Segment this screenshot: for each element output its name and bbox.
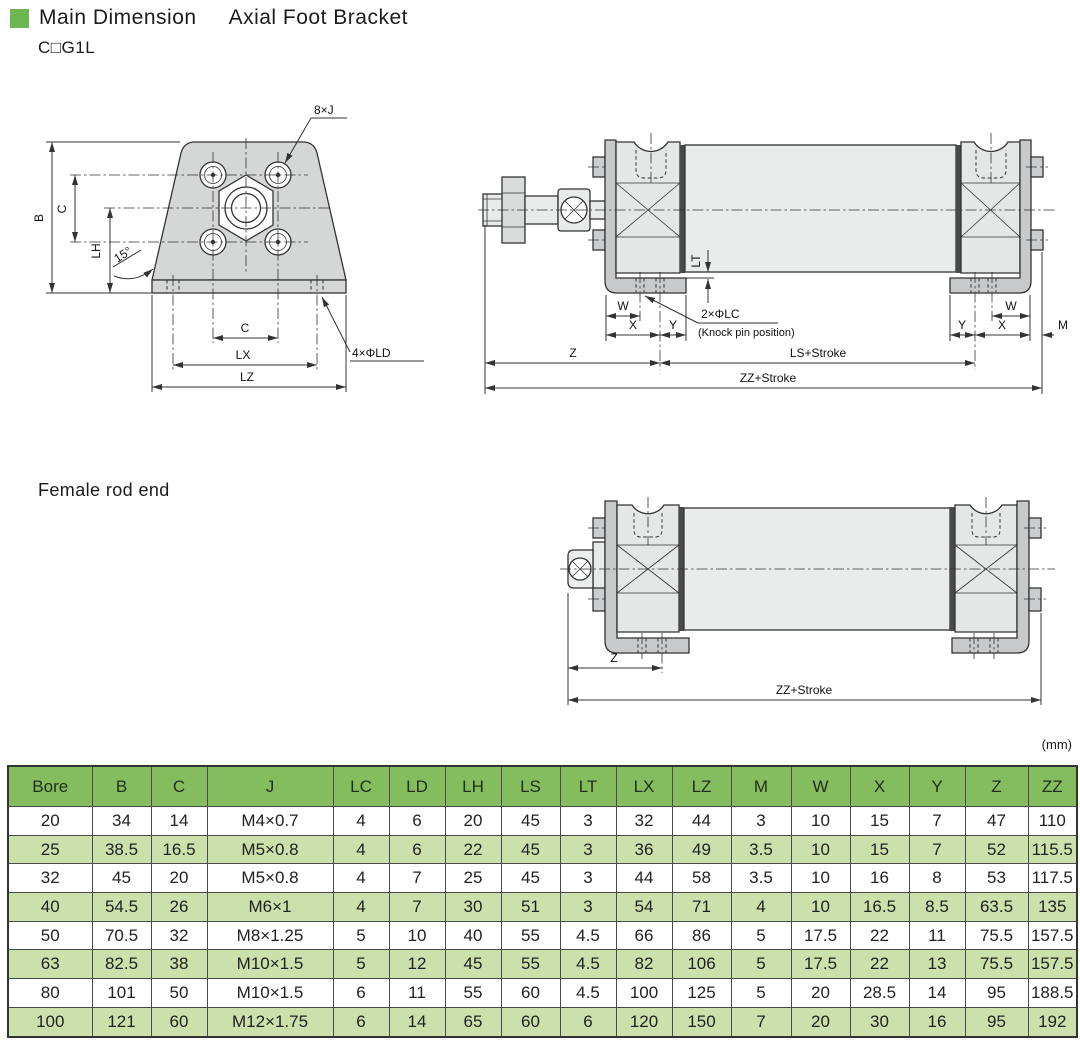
table-cell: 150 bbox=[672, 1007, 731, 1036]
table-cell: M10×1.5 bbox=[207, 950, 333, 979]
page-title: Main Dimension bbox=[39, 6, 197, 30]
table-cell: 7 bbox=[909, 835, 965, 864]
table-cell: 38 bbox=[151, 950, 207, 979]
table-cell: 22 bbox=[850, 950, 909, 979]
side-view-drawing: LT W X Y W Y X M Z LS+Stroke ZZ+Stroke 2… bbox=[478, 105, 1078, 395]
table-cell: 95 bbox=[965, 979, 1028, 1008]
table-cell: 17.5 bbox=[791, 921, 850, 950]
table-cell: 135 bbox=[1028, 893, 1077, 922]
table-cell: 86 bbox=[672, 921, 731, 950]
table-cell: 5 bbox=[333, 921, 389, 950]
callout-8xj-label: 8×J bbox=[314, 103, 334, 117]
table-cell: 38.5 bbox=[92, 835, 151, 864]
table-cell: 60 bbox=[501, 1007, 560, 1036]
table-cell: 49 bbox=[672, 835, 731, 864]
table-cell: 12 bbox=[389, 950, 445, 979]
table-cell: 117.5 bbox=[1028, 864, 1077, 893]
table-cell: 3 bbox=[731, 807, 791, 836]
table-cell: 44 bbox=[672, 807, 731, 836]
table-cell: 100 bbox=[616, 979, 672, 1008]
dim-lt-label: LT bbox=[689, 254, 703, 268]
table-cell: 110 bbox=[1028, 807, 1077, 836]
callout-4xfld-label: 4×ΦLD bbox=[352, 346, 391, 360]
end-cap-left bbox=[616, 142, 680, 273]
table-cell: 3 bbox=[560, 807, 616, 836]
table-cell: 101 bbox=[92, 979, 151, 1008]
table-cell: 7 bbox=[909, 807, 965, 836]
dim-x-left-label: X bbox=[629, 318, 637, 332]
table-header-cell: LX bbox=[616, 766, 672, 807]
catalog-page: Main Dimension Axial Foot Bracket C□G1L bbox=[0, 0, 1080, 1041]
table-cell: 82 bbox=[616, 950, 672, 979]
table-cell: 32 bbox=[151, 921, 207, 950]
table-cell: 16.5 bbox=[850, 893, 909, 922]
page-header: Main Dimension Axial Foot Bracket bbox=[10, 6, 408, 30]
table-cell: 20 bbox=[791, 1007, 850, 1036]
table-cell: 44 bbox=[616, 864, 672, 893]
knock-pin-holes bbox=[638, 633, 998, 673]
table-cell: M8×1.25 bbox=[207, 921, 333, 950]
table-cell: 50 bbox=[8, 921, 92, 950]
table-cell: 32 bbox=[616, 807, 672, 836]
table-header-cell: C bbox=[151, 766, 207, 807]
table-row: 8010150M10×1.561155604.510012552028.5149… bbox=[8, 979, 1077, 1008]
table-cell: 82.5 bbox=[92, 950, 151, 979]
dim-lx-label: LX bbox=[236, 348, 251, 362]
table-cell: 6 bbox=[333, 1007, 389, 1036]
callout-2xflc-label: 2×ΦLC bbox=[701, 307, 740, 321]
table-cell: 10 bbox=[791, 835, 850, 864]
table-cell: 16.5 bbox=[151, 835, 207, 864]
table-cell: 52 bbox=[965, 835, 1028, 864]
model-code: C□G1L bbox=[38, 38, 95, 58]
table-header-cell: ZZ bbox=[1028, 766, 1077, 807]
table-cell: 5 bbox=[731, 950, 791, 979]
table-cell: 20 bbox=[791, 979, 850, 1008]
table-cell: 55 bbox=[501, 921, 560, 950]
table-cell: 45 bbox=[92, 864, 151, 893]
seal-band-left bbox=[680, 145, 685, 273]
table-cell: 8.5 bbox=[909, 893, 965, 922]
dim-c-vert-label: C bbox=[55, 204, 69, 213]
table-cell: 55 bbox=[445, 979, 501, 1008]
table-cell: 4 bbox=[333, 835, 389, 864]
dim-b-label: B bbox=[32, 214, 46, 222]
bracket-front-shape bbox=[152, 142, 346, 293]
table-header-cell: B bbox=[92, 766, 151, 807]
table-cell: 6 bbox=[389, 835, 445, 864]
table-cell: 14 bbox=[389, 1007, 445, 1036]
table-cell: 6 bbox=[560, 1007, 616, 1036]
table-cell: 4.5 bbox=[560, 950, 616, 979]
table-cell: 26 bbox=[151, 893, 207, 922]
table-row: 2538.516.5M5×0.8462245336493.51015752115… bbox=[8, 835, 1077, 864]
table-cell: 45 bbox=[501, 864, 560, 893]
table-cell: 45 bbox=[501, 807, 560, 836]
dim-z-label: Z bbox=[610, 651, 617, 665]
table-cell: 120 bbox=[616, 1007, 672, 1036]
table-cell: 7 bbox=[389, 893, 445, 922]
table-cell: 3 bbox=[560, 893, 616, 922]
table-cell: 4.5 bbox=[560, 979, 616, 1008]
dim-lz-label: LZ bbox=[240, 370, 254, 384]
table-cell: 4 bbox=[333, 893, 389, 922]
table-cell: 40 bbox=[8, 893, 92, 922]
table-cell: 3 bbox=[560, 864, 616, 893]
table-cell: 121 bbox=[92, 1007, 151, 1036]
table-row: 203414M4×0.74620453324431015747110 bbox=[8, 807, 1077, 836]
table-cell: 65 bbox=[445, 1007, 501, 1036]
table-header-cell: Y bbox=[909, 766, 965, 807]
table-cell: 188.5 bbox=[1028, 979, 1077, 1008]
table-header-cell: LZ bbox=[672, 766, 731, 807]
table-cell: 100 bbox=[8, 1007, 92, 1036]
table-header-cell: LD bbox=[389, 766, 445, 807]
table-cell: 3.5 bbox=[731, 835, 791, 864]
table-cell: 30 bbox=[850, 1007, 909, 1036]
table-cell: 36 bbox=[616, 835, 672, 864]
dim-zz-stroke-label: ZZ+Stroke bbox=[776, 683, 833, 697]
table-cell: 25 bbox=[445, 864, 501, 893]
table-cell: 80 bbox=[8, 979, 92, 1008]
table-cell: 10 bbox=[389, 921, 445, 950]
table-cell: 63 bbox=[8, 950, 92, 979]
green-square-icon bbox=[10, 9, 29, 28]
table-cell: 54 bbox=[616, 893, 672, 922]
table-row: 10012160M12×1.75614656061201507203016951… bbox=[8, 1007, 1077, 1036]
table-cell: 45 bbox=[445, 950, 501, 979]
table-cell: 7 bbox=[731, 1007, 791, 1036]
seal-band-right bbox=[956, 145, 961, 273]
table-header-cell: W bbox=[791, 766, 850, 807]
table-cell: 54.5 bbox=[92, 893, 151, 922]
table-cell: 5 bbox=[333, 950, 389, 979]
table-cell: 11 bbox=[909, 921, 965, 950]
table-cell: 71 bbox=[672, 893, 731, 922]
table-cell: M6×1 bbox=[207, 893, 333, 922]
table-cell: 45 bbox=[501, 835, 560, 864]
table-row: 324520M5×0.8472545344583.51016853117.5 bbox=[8, 864, 1077, 893]
table-cell: 4.5 bbox=[560, 921, 616, 950]
table-cell: 16 bbox=[850, 864, 909, 893]
dimension-table: BoreBCJLCLDLHLSLTLXLZMWXYZZZ 203414M4×0.… bbox=[7, 765, 1078, 1038]
table-cell: 55 bbox=[501, 950, 560, 979]
table-cell: 22 bbox=[850, 921, 909, 950]
dim-w-right-label: W bbox=[1005, 299, 1017, 313]
table-row: 6382.538M10×1.551245554.582106517.522137… bbox=[8, 950, 1077, 979]
dim-ls-stroke-label: LS+Stroke bbox=[790, 346, 847, 360]
table-cell: 47 bbox=[965, 807, 1028, 836]
table-cell: 75.5 bbox=[965, 921, 1028, 950]
table-header-cell: LH bbox=[445, 766, 501, 807]
dim-angle-label: 15° bbox=[111, 244, 134, 266]
page-subtitle: Axial Foot Bracket bbox=[229, 6, 408, 30]
table-cell: 3 bbox=[560, 835, 616, 864]
table-header-cell: LT bbox=[560, 766, 616, 807]
table-header-cell: Z bbox=[965, 766, 1028, 807]
dim-m-label: M bbox=[1058, 318, 1068, 332]
table-cell: 10 bbox=[791, 807, 850, 836]
dim-c-horiz-label: C bbox=[241, 321, 250, 335]
table-cell: 17.5 bbox=[791, 950, 850, 979]
table-cell: 10 bbox=[791, 893, 850, 922]
table-cell: 95 bbox=[965, 1007, 1028, 1036]
dim-y-right-label: Y bbox=[958, 318, 966, 332]
callout-knock-pin-note: (Knock pin position) bbox=[698, 327, 795, 339]
table-cell: 106 bbox=[672, 950, 731, 979]
table-cell: 5 bbox=[731, 979, 791, 1008]
table-cell: 4 bbox=[731, 893, 791, 922]
table-cell: 75.5 bbox=[965, 950, 1028, 979]
table-cell: 157.5 bbox=[1028, 950, 1077, 979]
table-cell: 7 bbox=[389, 864, 445, 893]
cylinder-tube bbox=[685, 145, 956, 272]
table-cell: 70.5 bbox=[92, 921, 151, 950]
table-cell: 60 bbox=[501, 979, 560, 1008]
table-cell: M4×0.7 bbox=[207, 807, 333, 836]
table-cell: 157.5 bbox=[1028, 921, 1077, 950]
table-cell: 10 bbox=[791, 864, 850, 893]
table-header-cell: J bbox=[207, 766, 333, 807]
front-view-drawing: B C LH 15° C LX LZ 8×J 4×ΦLD bbox=[30, 90, 450, 405]
dim-lh-label: LH bbox=[89, 243, 103, 258]
dim-y-left-label: Y bbox=[669, 318, 677, 332]
table-cell: 13 bbox=[909, 950, 965, 979]
table-cell: 30 bbox=[445, 893, 501, 922]
table-cell: 115.5 bbox=[1028, 835, 1077, 864]
table-cell: 20 bbox=[445, 807, 501, 836]
table-header-row: BoreBCJLCLDLHLSLTLXLZMWXYZZZ bbox=[8, 766, 1077, 807]
table-cell: M12×1.75 bbox=[207, 1007, 333, 1036]
table-cell: 125 bbox=[672, 979, 731, 1008]
table-header-cell: M bbox=[731, 766, 791, 807]
table-cell: 4 bbox=[333, 807, 389, 836]
dim-w-left-label: W bbox=[617, 299, 629, 313]
table-cell: 53 bbox=[965, 864, 1028, 893]
table-header-cell: Bore bbox=[8, 766, 92, 807]
dim-z-label: Z bbox=[569, 346, 576, 360]
dim-x-right-label: X bbox=[998, 318, 1006, 332]
end-cap-right bbox=[961, 142, 1020, 273]
table-cell: 192 bbox=[1028, 1007, 1077, 1036]
table-cell: 60 bbox=[151, 1007, 207, 1036]
table-cell: 50 bbox=[151, 979, 207, 1008]
table-cell: 11 bbox=[389, 979, 445, 1008]
table-row: 5070.532M8×1.2551040554.56686517.5221175… bbox=[8, 921, 1077, 950]
table-cell: 63.5 bbox=[965, 893, 1028, 922]
table-cell: 32 bbox=[8, 864, 92, 893]
table-header-cell: LC bbox=[333, 766, 389, 807]
table-cell: 5 bbox=[731, 921, 791, 950]
units-label: (mm) bbox=[1042, 737, 1072, 752]
table-cell: 3.5 bbox=[731, 864, 791, 893]
table-cell: 22 bbox=[445, 835, 501, 864]
table-cell: 6 bbox=[389, 807, 445, 836]
table-cell: M5×0.8 bbox=[207, 835, 333, 864]
table-cell: 8 bbox=[909, 864, 965, 893]
table-cell: 28.5 bbox=[850, 979, 909, 1008]
table-cell: 6 bbox=[333, 979, 389, 1008]
table-row: 4054.526M6×14730513547141016.58.563.5135 bbox=[8, 893, 1077, 922]
table-cell: M10×1.5 bbox=[207, 979, 333, 1008]
dim-zz-stroke-label: ZZ+Stroke bbox=[740, 371, 797, 385]
table-cell: 14 bbox=[909, 979, 965, 1008]
table-header-cell: X bbox=[850, 766, 909, 807]
table-header-cell: LS bbox=[501, 766, 560, 807]
dimension-labels: Z ZZ+Stroke bbox=[610, 651, 832, 697]
table-cell: 66 bbox=[616, 921, 672, 950]
table-cell: 15 bbox=[850, 835, 909, 864]
table-cell: 20 bbox=[151, 864, 207, 893]
table-cell: 14 bbox=[151, 807, 207, 836]
female-view-drawing: Z ZZ+Stroke bbox=[560, 485, 1070, 705]
table-cell: 40 bbox=[445, 921, 501, 950]
table-cell: 16 bbox=[909, 1007, 965, 1036]
table-cell: 25 bbox=[8, 835, 92, 864]
table-cell: 15 bbox=[850, 807, 909, 836]
table-cell: 51 bbox=[501, 893, 560, 922]
table-cell: 58 bbox=[672, 864, 731, 893]
table-cell: 34 bbox=[92, 807, 151, 836]
table-cell: 20 bbox=[8, 807, 92, 836]
table-cell: M5×0.8 bbox=[207, 864, 333, 893]
table-cell: 4 bbox=[333, 864, 389, 893]
female-rod-end-label: Female rod end bbox=[38, 480, 170, 501]
